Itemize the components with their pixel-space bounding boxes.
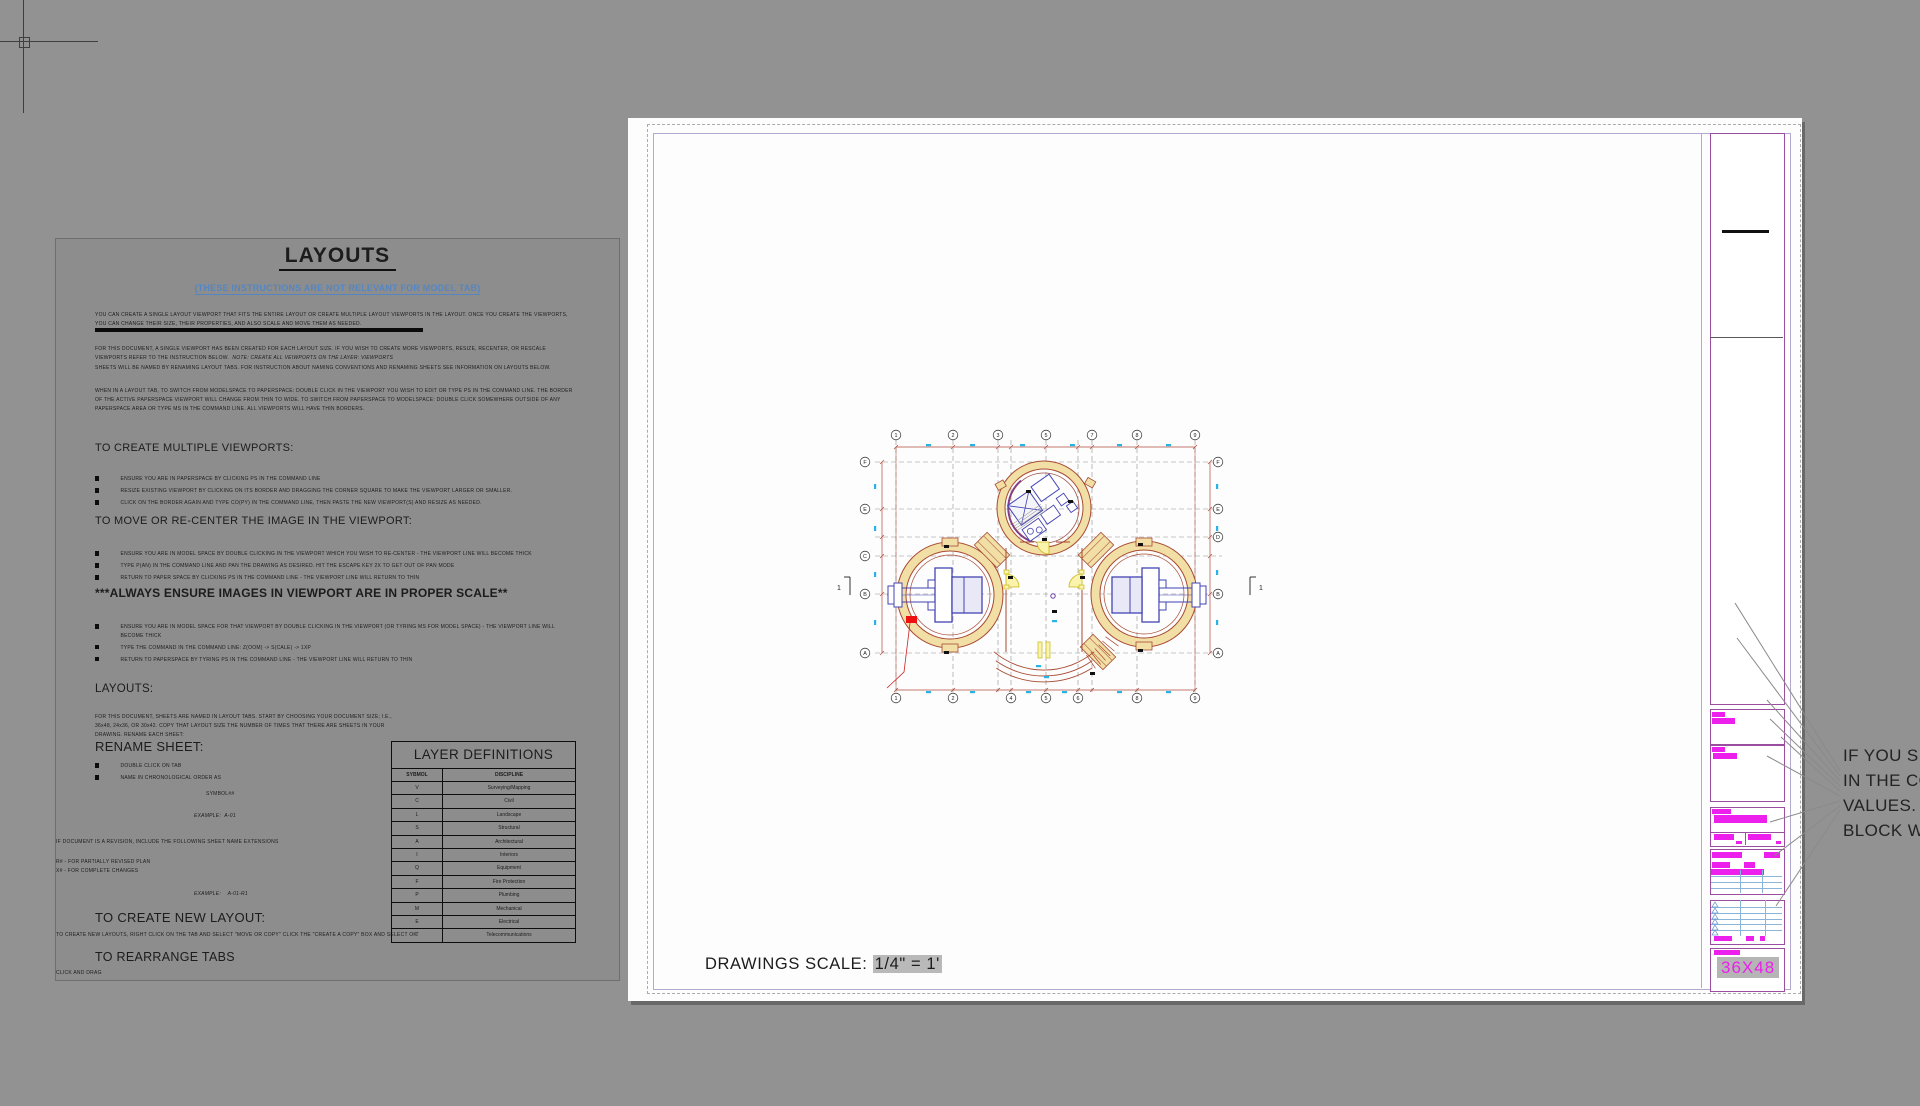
info-col-line xyxy=(1762,870,1763,893)
layer-symbol: L xyxy=(392,809,443,821)
layer-discipline: Fire Protection xyxy=(443,876,575,888)
doc-subtitle: (THESE INSTRUCTIONS ARE NOT RELEVANT FOR… xyxy=(56,283,619,295)
bullet-text: TYPE THE COMMAND IN THE COMMAND LINE: Z(… xyxy=(99,644,312,653)
layer-row: LLandscape xyxy=(392,809,575,822)
command-line-note: IF YOU SEE #IN THE COMMVALUES. SABLOCK W… xyxy=(1843,743,1920,843)
layer-row: TTelecommunications xyxy=(392,929,575,941)
grid-bubble: C xyxy=(860,551,870,561)
symbol-line: SYMBOL## xyxy=(206,790,234,799)
bullet-item: DOUBLE CLICK ON TAB xyxy=(95,762,375,771)
layer-row: CCivil xyxy=(392,795,575,808)
layer-symbol: C xyxy=(392,795,443,807)
svg-text:E: E xyxy=(863,507,867,513)
grid-bubble: 2 xyxy=(948,430,958,440)
svg-text:B: B xyxy=(863,592,867,598)
crosshair-vertical xyxy=(23,0,24,113)
bullet-text: TYPE P(AN) IN THE COMMAND LINE AND PAN T… xyxy=(99,562,455,571)
doc-paragraph-3: SHEETS WILL BE NAMED BY RENAMING LAYOUT … xyxy=(95,364,573,373)
doc-paragraph-1: YOU CAN CREATE A SINGLE LAYOUT VIEWPORT … xyxy=(95,311,573,329)
floor-plan-drawing: 12357891245689FECBAFEDBA11 xyxy=(830,420,1270,720)
grid-bubble: 9 xyxy=(1190,430,1200,440)
layer-row: EElectrical xyxy=(392,916,575,929)
layer-discipline: Plumbing xyxy=(443,889,575,901)
layer-symbol: A xyxy=(392,836,443,848)
svg-text:1: 1 xyxy=(837,585,841,592)
example-1: EXAMPLE: A-01 xyxy=(194,812,236,821)
layer-symbol: S xyxy=(392,822,443,834)
info-col-line xyxy=(1740,870,1741,893)
doc-title: LAYOUTS xyxy=(56,244,619,271)
x-extension-line: X# - FOR COMPLETE CHANGES xyxy=(56,867,138,876)
heading-layouts: LAYOUTS: xyxy=(95,683,153,695)
sheet-size-label: 36X48 xyxy=(1717,957,1779,978)
grid-bubble: B xyxy=(860,589,870,599)
layer-symbol: I xyxy=(392,849,443,861)
info-row-line xyxy=(1711,882,1782,883)
doc-black-bar xyxy=(95,328,423,332)
bullet-item: TYPE P(AN) IN THE COMMAND LINE AND PAN T… xyxy=(95,562,573,571)
bullet-item: CLICK ON THE BORDER AGAIN AND TYPE CO(PY… xyxy=(95,499,573,508)
crosshair-pickbox xyxy=(19,37,30,48)
svg-text:4: 4 xyxy=(1010,696,1013,702)
layer-discipline: Surveying/Mapping xyxy=(443,782,575,794)
layer-table-header: SYBMOL DISCIPLINE xyxy=(392,769,575,782)
attribute-placeholder xyxy=(1712,809,1731,814)
layer-symbol: M xyxy=(392,903,443,915)
grid-bubble: E xyxy=(860,504,870,514)
layer-discipline: Structural xyxy=(443,822,575,834)
layer-row: QEquipment xyxy=(392,862,575,875)
grid-bubble: 4 xyxy=(1006,693,1016,703)
heading-rearrange-tabs: TO REARRANGE TABS xyxy=(95,950,235,964)
info-row-line xyxy=(1711,876,1782,877)
svg-text:5: 5 xyxy=(1045,433,1048,439)
svg-text:C: C xyxy=(863,554,867,560)
heading-move-recenter: TO MOVE OR RE-CENTER THE IMAGE IN THE VI… xyxy=(95,515,412,527)
bullet-text: ENSURE YOU ARE IN MODEL SPACE FOR THAT V… xyxy=(99,623,574,640)
svg-text:9: 9 xyxy=(1194,696,1197,702)
layer-row: PPlumbing xyxy=(392,889,575,902)
grid-bubble: 6 xyxy=(1073,693,1083,703)
note-line: VALUES. SA xyxy=(1843,793,1920,818)
revision-note: IF DOCUMENT IS A REVISION, INCLUDE THE F… xyxy=(56,838,336,847)
layer-symbol: T xyxy=(392,929,443,941)
layer-discipline: Mechanical xyxy=(443,903,575,915)
grid-bubble: 9 xyxy=(1190,693,1200,703)
grid-bubble: 1 xyxy=(891,430,901,440)
grid-bubble: F xyxy=(1213,457,1223,467)
autocad-canvas[interactable]: { "document": { "title": "LAYOUTS", "sub… xyxy=(0,0,1920,1106)
bullet-item: NAME IN CHRONOLOGICAL ORDER AS xyxy=(95,774,375,783)
layer-symbol: E xyxy=(392,916,443,928)
bullet-text: NAME IN CHRONOLOGICAL ORDER AS xyxy=(99,774,222,783)
bullets-create-viewports: ENSURE YOU ARE IN PAPERSPACE BY CLICKING… xyxy=(95,475,573,512)
title-block-cell-divider xyxy=(1745,832,1746,845)
heading-new-layout: TO CREATE NEW LAYOUT: xyxy=(95,910,265,925)
layer-symbol: P xyxy=(392,889,443,901)
note-line: IN THE COMM xyxy=(1843,768,1920,793)
svg-text:1: 1 xyxy=(895,696,898,702)
grid-bubble: A xyxy=(1213,648,1223,658)
bullet-item: TYPE THE COMMAND IN THE COMMAND LINE: Z(… xyxy=(95,644,573,653)
grid-bubble: D xyxy=(1213,532,1223,542)
doc-note-italic: NOTE: CREATE ALL VEIWPORTS ON THE LAYER:… xyxy=(232,355,393,361)
svg-text:D: D xyxy=(1216,535,1220,541)
svg-text:2: 2 xyxy=(952,696,955,702)
bullet-item: RETURN TO PAPERSPACE BY TYRING PS IN THE… xyxy=(95,656,573,665)
layer-discipline: Architectural xyxy=(443,836,575,848)
layer-col-symbol: SYBMOL xyxy=(392,769,443,781)
grid-bubble: 5 xyxy=(1041,693,1051,703)
bullets-proper-scale: ENSURE YOU ARE IN MODEL SPACE FOR THAT V… xyxy=(95,623,573,668)
attribute-placeholder xyxy=(1714,834,1734,840)
heading-rename-sheet: RENAME SHEET: xyxy=(95,739,204,754)
layer-row: FFire Protection xyxy=(392,876,575,889)
title-block-section xyxy=(1710,133,1785,705)
attribute-placeholder xyxy=(1712,862,1730,868)
layer-symbol: F xyxy=(392,876,443,888)
revision-delta-icons xyxy=(1710,900,1783,943)
attribute-placeholder xyxy=(1712,852,1742,858)
attribute-placeholder xyxy=(1714,815,1767,823)
attribute-placeholder xyxy=(1713,753,1737,759)
grid-bubble: E xyxy=(1213,504,1223,514)
attribute-placeholder xyxy=(1712,718,1735,724)
svg-text:5: 5 xyxy=(1045,696,1048,702)
layer-definitions-table: LAYER DEFINITIONS SYBMOL DISCIPLINE VSur… xyxy=(391,741,576,943)
heading-create-viewports: TO CREATE MULTIPLE VIEWPORTS: xyxy=(95,442,294,454)
grid-bubble: 5 xyxy=(1041,430,1051,440)
layer-table-rows: VSurveying/MappingCCivilLLandscapeSStruc… xyxy=(392,782,575,942)
layer-discipline: Equipment xyxy=(443,862,575,874)
crosshair-horizontal xyxy=(0,41,98,42)
layer-row: VSurveying/Mapping xyxy=(392,782,575,795)
layer-table-title: LAYER DEFINITIONS xyxy=(392,742,575,769)
attribute-placeholder xyxy=(1764,852,1780,858)
bullet-text: ENSURE YOU ARE IN MODEL SPACE BY DOUBLE … xyxy=(99,550,532,559)
attribute-placeholder xyxy=(1744,862,1755,868)
info-row-line xyxy=(1711,888,1782,889)
svg-text:A: A xyxy=(1216,651,1220,657)
viewport-right-edge xyxy=(1701,133,1702,988)
svg-text:E: E xyxy=(1216,507,1220,513)
svg-text:2: 2 xyxy=(952,433,955,439)
layer-discipline: Interiors xyxy=(443,849,575,861)
svg-text:7: 7 xyxy=(1091,433,1094,439)
attribute-placeholder xyxy=(1736,841,1742,844)
grid-bubble: 3 xyxy=(993,430,1003,440)
layer-row: AArchitectural xyxy=(392,836,575,849)
bullet-text: ENSURE YOU ARE IN PAPERSPACE BY CLICKING… xyxy=(99,475,321,484)
svg-text:1: 1 xyxy=(895,433,898,439)
note-line: BLOCK WITH xyxy=(1843,818,1920,843)
bullet-text: RETURN TO PAPERSPACE BY TYRING PS IN THE… xyxy=(99,656,413,665)
bullets-rename-sheet: DOUBLE CLICK ON TABNAME IN CHRONOLOGICAL… xyxy=(95,762,375,786)
drawing-scale-note: DRAWINGS SCALE: 1/4" = 1' xyxy=(705,955,942,974)
grid-bubble: A xyxy=(860,648,870,658)
layouts-body: FOR THIS DOCUMENT, SHEETS ARE NAMED IN L… xyxy=(95,713,395,739)
bullet-text: RESIZE EXISTING VIEWPORT BY CLICKING ON … xyxy=(99,487,513,496)
attribute-placeholder xyxy=(1712,712,1725,717)
bullet-text: CLICK ON THE BORDER AGAIN AND TYPE CO(PY… xyxy=(99,499,482,508)
layer-symbol: Q xyxy=(392,862,443,874)
layer-discipline: Landscape xyxy=(443,809,575,821)
svg-text:8: 8 xyxy=(1136,696,1139,702)
note-line: IF YOU SEE # xyxy=(1843,743,1920,768)
doc-paragraph-2: FOR THIS DOCUMENT, A SINGLE VIEWPORT HAS… xyxy=(95,345,573,363)
heading-proper-scale: ***ALWAYS ENSURE IMAGES IN VIEWPORT ARE … xyxy=(95,586,508,600)
bullet-text: DOUBLE CLICK ON TAB xyxy=(99,762,182,771)
bullets-move-recenter: ENSURE YOU ARE IN MODEL SPACE BY DOUBLE … xyxy=(95,550,573,587)
svg-text:6: 6 xyxy=(1077,696,1080,702)
bullet-item: ENSURE YOU ARE IN PAPERSPACE BY CLICKING… xyxy=(95,475,573,484)
bullet-text: RETURN TO PAPER SPACE BY CLICKING PS IN … xyxy=(99,574,420,583)
svg-text:9: 9 xyxy=(1194,433,1197,439)
layer-symbol: V xyxy=(392,782,443,794)
attribute-placeholder xyxy=(1714,950,1740,955)
grid-bubble: B xyxy=(1213,589,1223,599)
title-block-divider xyxy=(1710,337,1783,338)
bullet-item: ENSURE YOU ARE IN MODEL SPACE BY DOUBLE … xyxy=(95,550,573,559)
sheet-size-box: 36X48 xyxy=(1717,958,1779,978)
layer-discipline: Civil xyxy=(443,795,575,807)
grid-bubble: 8 xyxy=(1132,693,1142,703)
grid-bubble: 8 xyxy=(1132,430,1142,440)
layer-row: MMechanical xyxy=(392,903,575,916)
layer-row: IInteriors xyxy=(392,849,575,862)
attribute-placeholder xyxy=(1776,841,1781,844)
scale-value-highlight[interactable]: 1/4" = 1' xyxy=(873,955,942,973)
svg-text:8: 8 xyxy=(1136,433,1139,439)
attribute-placeholder xyxy=(1712,747,1725,752)
svg-text:1: 1 xyxy=(1259,585,1263,592)
layer-col-discipline: DISCIPLINE xyxy=(443,769,575,781)
layer-discipline: Electrical xyxy=(443,916,575,928)
r-extension-line: R# - FOR PARTIALLY REVISED PLAN xyxy=(56,858,150,867)
svg-text:B: B xyxy=(1216,592,1220,598)
north-arrow-line xyxy=(1722,230,1769,233)
grid-bubble: 2 xyxy=(948,693,958,703)
doc-paragraph-4: WHEN IN A LAYOUT TAB, TO SWITCH FROM MOD… xyxy=(95,387,573,413)
bullet-item: ENSURE YOU ARE IN MODEL SPACE FOR THAT V… xyxy=(95,623,573,640)
attribute-placeholder xyxy=(1711,869,1764,875)
attribute-placeholder xyxy=(1748,834,1771,840)
bullet-item: RESIZE EXISTING VIEWPORT BY CLICKING ON … xyxy=(95,487,573,496)
example-2: EXAMPLE: A-01-R1 xyxy=(194,890,248,899)
layer-row: SStructural xyxy=(392,822,575,835)
bullet-item: RETURN TO PAPER SPACE BY CLICKING PS IN … xyxy=(95,574,573,583)
svg-text:A: A xyxy=(863,651,867,657)
layout-instructions-panel: LAYOUTS (THESE INSTRUCTIONS ARE NOT RELE… xyxy=(55,238,620,981)
grid-bubble: 7 xyxy=(1087,430,1097,440)
layer-discipline: Telecommunications xyxy=(443,929,575,941)
rearrange-body: CLICK AND DRAG xyxy=(56,969,102,978)
svg-text:3: 3 xyxy=(997,433,1000,439)
grid-bubble: 1 xyxy=(891,693,901,703)
grid-bubble: F xyxy=(860,457,870,467)
